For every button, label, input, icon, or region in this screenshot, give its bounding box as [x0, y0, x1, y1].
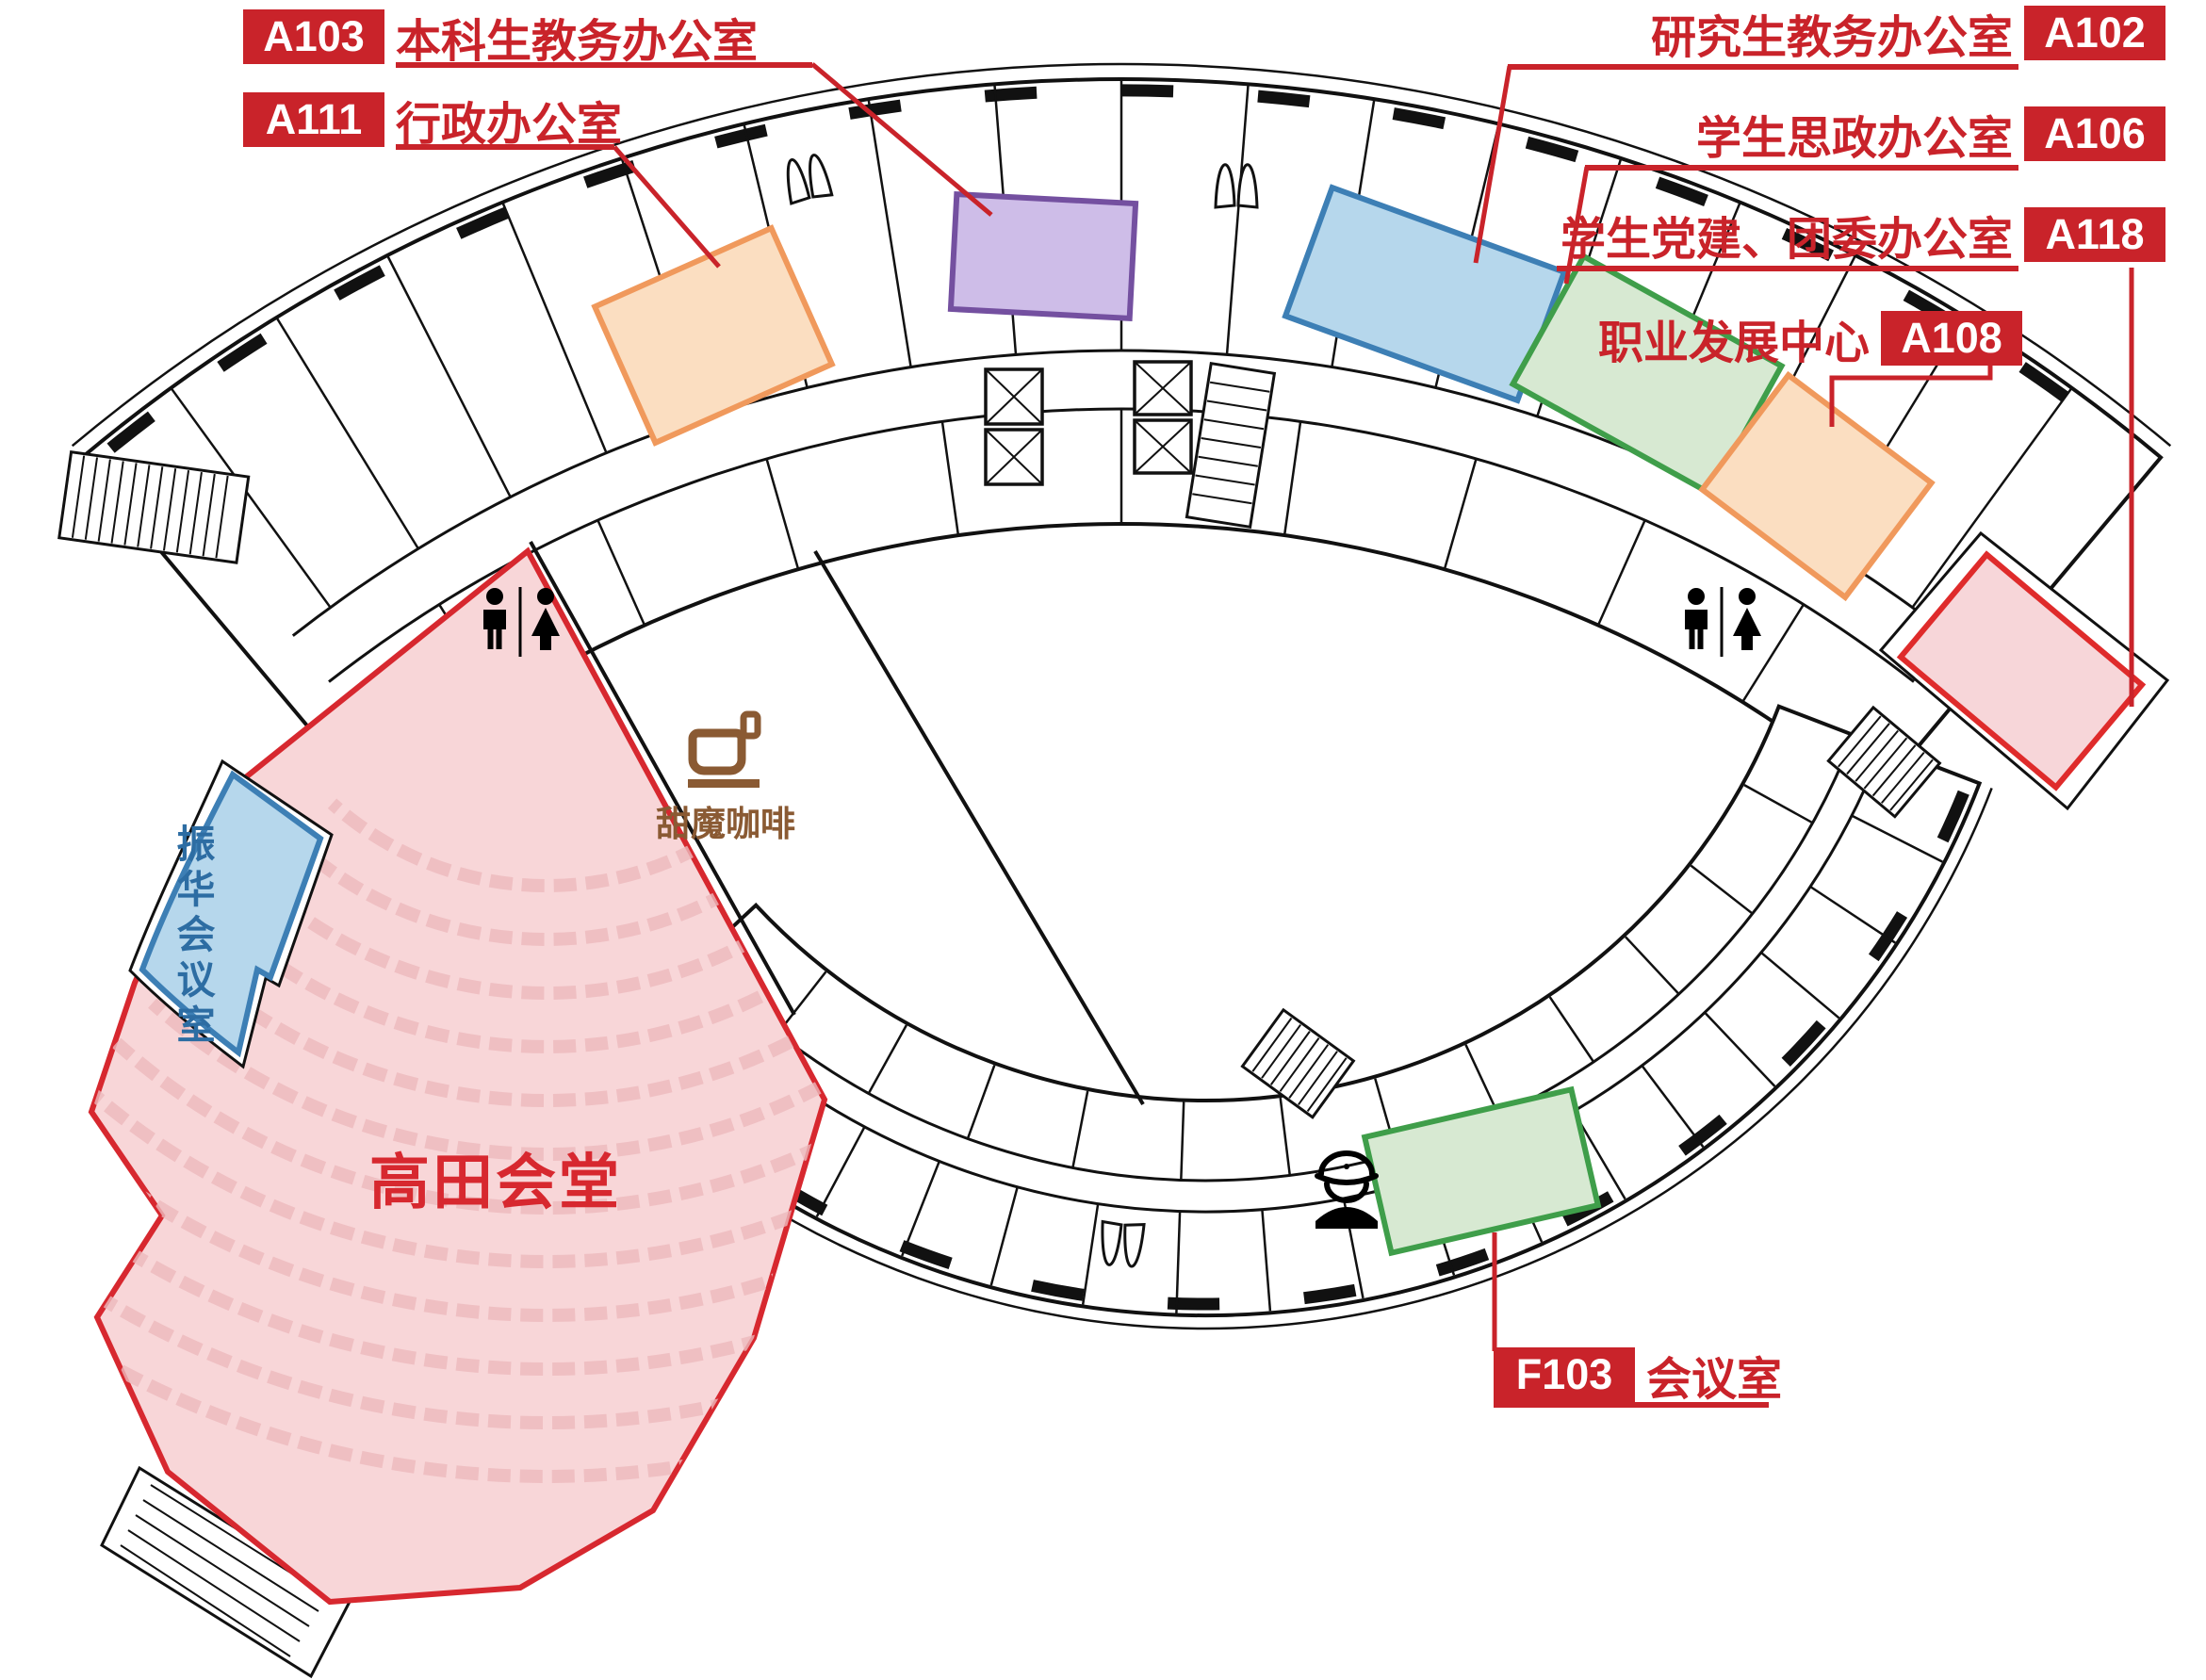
label-row-a118: 学生党建、团委办公室 A118 — [1561, 207, 2165, 262]
label-row-a111: A111 行政办公室 — [243, 92, 622, 147]
room-name-label: 会议室 — [1646, 1342, 1782, 1408]
label-row-a106: 学生思政办公室 A106 — [1696, 106, 2165, 161]
floor-plan-page: A103 本科生教务办公室 A111 行政办公室 研究生教务办公室 A102 学… — [0, 0, 2206, 1680]
cafe-name-label: 甜魔咖啡 — [641, 795, 810, 846]
label-row-a103: A103 本科生教务办公室 — [243, 9, 758, 64]
room-code-badge: A118 — [2024, 207, 2165, 262]
room-name-label: 职业发展中心 — [1598, 305, 1870, 371]
zhenhua-room-name-label: 振华会议室 — [164, 824, 221, 1050]
room-code-badge: A103 — [243, 9, 384, 64]
label-row-f103: F103 会议室 — [1494, 1347, 1782, 1402]
room-code-badge: A106 — [2024, 106, 2165, 161]
room-name-label: 研究生教务办公室 — [1651, 0, 2013, 66]
room-code-badge: F103 — [1494, 1347, 1635, 1402]
room-name-label: 本科生教务办公室 — [396, 4, 758, 70]
label-row-a108: 职业发展中心 A108 — [1598, 311, 2022, 366]
room-name-label: 学生思政办公室 — [1696, 101, 2013, 167]
room-code-badge: A108 — [1881, 311, 2022, 366]
auditorium-name-label: 高田会堂 — [369, 1134, 622, 1221]
coffee-cup-icon — [688, 714, 760, 788]
room-name-label: 学生党建、团委办公室 — [1561, 202, 2013, 268]
room-code-badge: A111 — [243, 92, 384, 147]
label-row-a102: 研究生教务办公室 A102 — [1651, 6, 2165, 60]
room-code-badge: A102 — [2024, 6, 2165, 60]
room-name-label: 行政办公室 — [396, 87, 622, 153]
room-a103-undergrad-office — [951, 194, 1136, 318]
